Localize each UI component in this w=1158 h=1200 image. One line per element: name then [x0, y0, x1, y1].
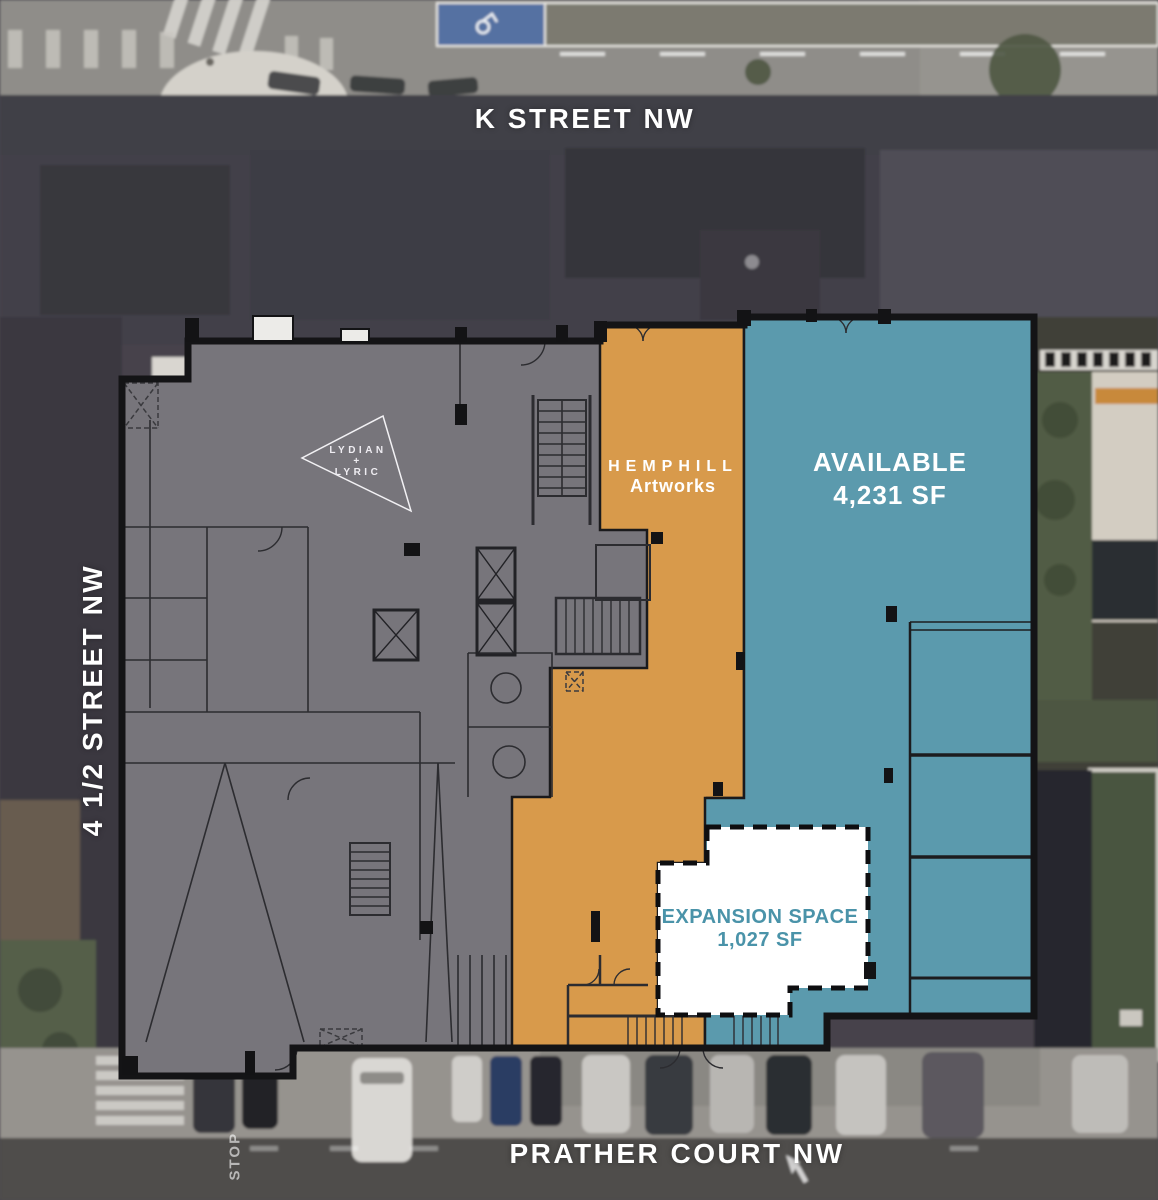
prather-court-label: PRATHER COURT NW [477, 1138, 877, 1170]
site-plan-page: K STREET NW 4 1/2 STREET NW PRATHER COUR… [0, 0, 1158, 1200]
stop-road-marking: STOP [227, 1147, 244, 1181]
expansion-word: EXPANSION SPACE [640, 906, 880, 929]
available-suite-label: AVAILABLE 4,231 SF [740, 446, 1040, 512]
lydian-line1: LYDIAN [298, 445, 418, 456]
available-word: AVAILABLE [740, 446, 1040, 479]
lydian-lyric-logo-text: LYDIAN + LYRIC [298, 445, 418, 478]
available-area: 4,231 SF [740, 479, 1040, 512]
lydian-line2: + [298, 456, 418, 467]
k-street-label: K STREET NW [385, 103, 785, 135]
lydian-line3: LYRIC [298, 467, 418, 478]
half-street-label: 4 1/2 STREET NW [76, 550, 110, 850]
bus-lane [545, 3, 1158, 46]
expansion-area: 1,027 SF [640, 929, 880, 952]
expansion-space-label: EXPANSION SPACE 1,027 SF [640, 906, 880, 952]
aerial-floor-plan-canvas [0, 0, 1158, 1200]
floor-plan [122, 309, 1034, 1076]
bike-lane-box [437, 3, 545, 46]
